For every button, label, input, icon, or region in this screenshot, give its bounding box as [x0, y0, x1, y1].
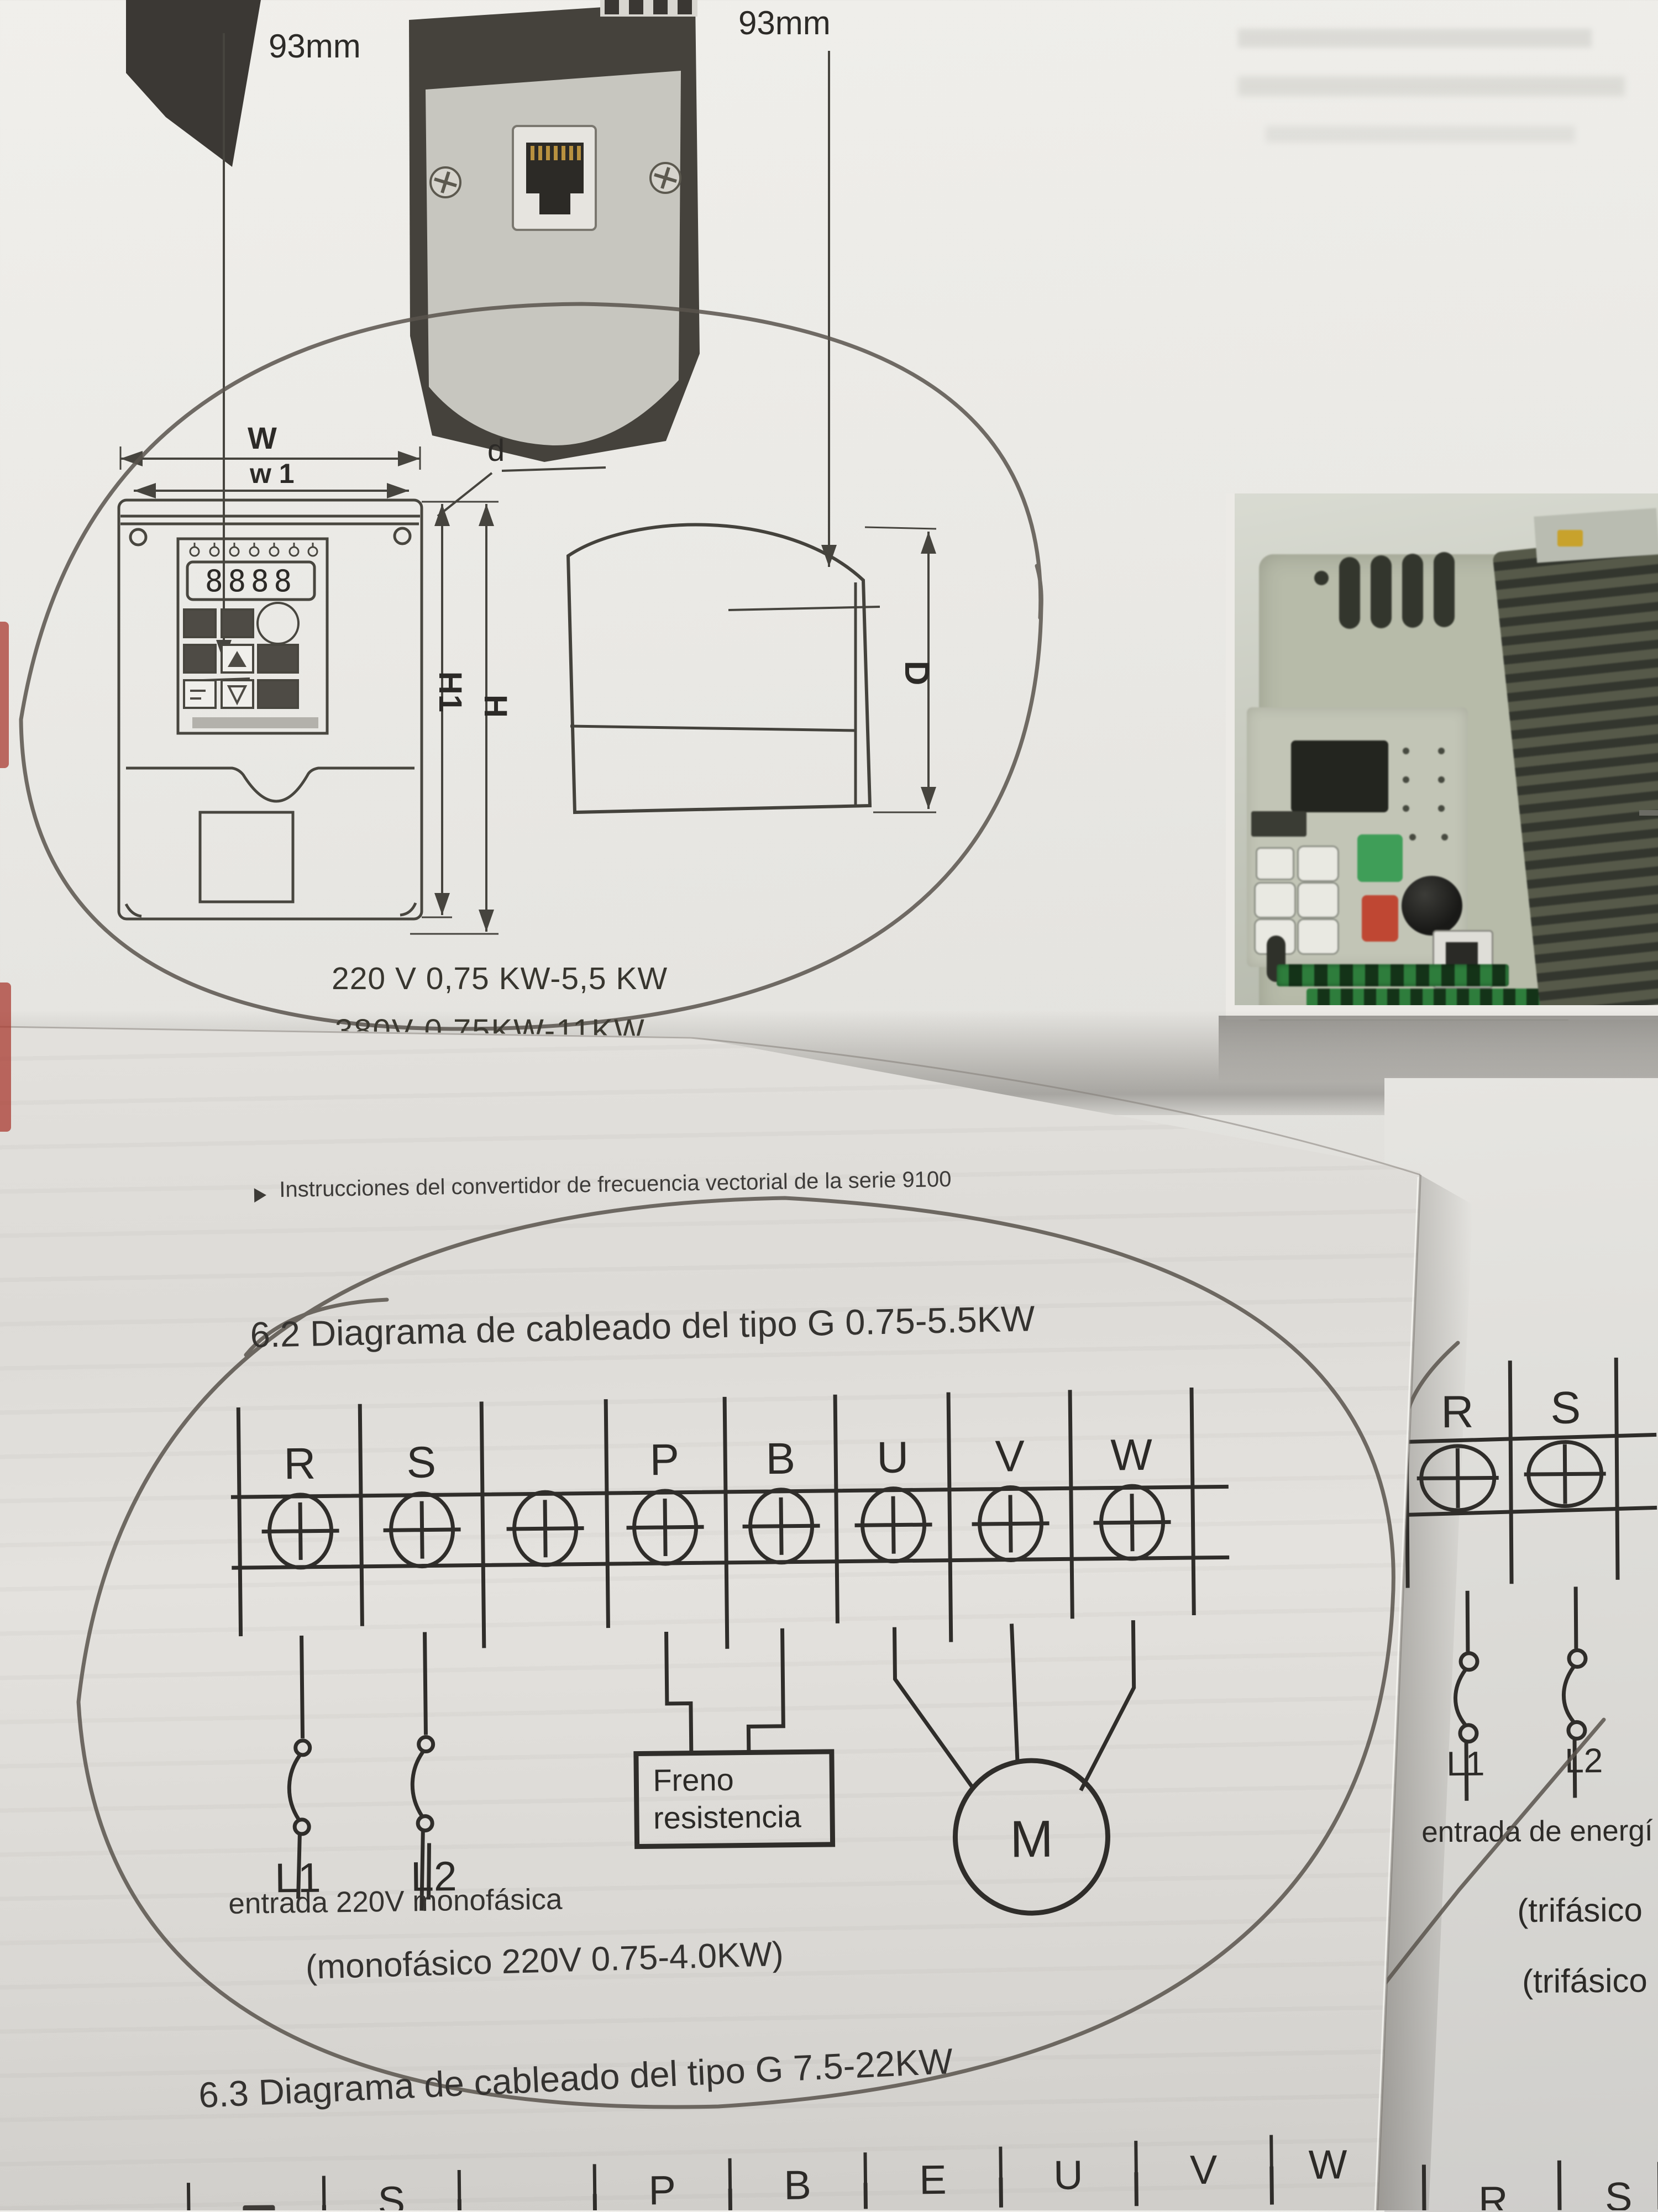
red-edge-mark — [0, 982, 11, 1132]
terminal-label: B — [765, 1434, 795, 1484]
terminal-label: V — [1190, 2147, 1218, 2193]
wiring-diagram-62: R S P B U V W Freno resistencia M L1 L2 … — [0, 0, 1658, 2210]
page-top-edge — [0, 1027, 1420, 1175]
intro-bullet-icon — [254, 1188, 266, 1202]
input-caption-220: entrada 220V monofásica — [228, 1884, 563, 1920]
terminal-label: U — [877, 1432, 909, 1482]
screw-terminal-icon — [626, 1490, 704, 1564]
screw-terminal-icon — [1093, 1485, 1171, 1559]
red-edge-mark — [0, 622, 9, 768]
terminal-label: R — [284, 1439, 316, 1489]
photographed-manual-page: { "page_a": { "dim_label_left": "93mm", … — [0, 0, 1658, 2210]
terminal-table-62 — [230, 1387, 1230, 1654]
terminal-label: U — [1053, 2152, 1083, 2198]
brake-label: resistencia — [653, 1799, 802, 1835]
terminal-label: W — [1110, 1430, 1153, 1480]
screw-terminal-icon — [742, 1489, 820, 1563]
terminal-label: P — [649, 1435, 679, 1485]
terminal-label: W — [1308, 2141, 1347, 2188]
page-right-edge — [1377, 1175, 1420, 2210]
terminal-label: B — [784, 2162, 811, 2208]
motor-label: M — [1010, 1810, 1053, 1868]
screw-terminal-icon — [261, 1494, 339, 1568]
screw-terminal-icon — [972, 1487, 1050, 1561]
bottom-terminal-strip-62 — [188, 2135, 1272, 2210]
terminal-label: S — [377, 2178, 405, 2210]
clipped-letter-fragment — [243, 2205, 275, 2210]
terminal-label: E — [919, 2157, 947, 2203]
screw-terminal-icon — [506, 1492, 584, 1565]
screw-terminal-icon — [854, 1488, 932, 1562]
terminal-label: P — [648, 2167, 676, 2210]
terminal-label: S — [406, 1437, 436, 1487]
terminal-label: V — [995, 1431, 1025, 1481]
motor-circuit — [894, 1620, 1136, 1914]
brake-label: Freno — [653, 1762, 734, 1798]
screw-terminal-icon — [383, 1493, 461, 1567]
